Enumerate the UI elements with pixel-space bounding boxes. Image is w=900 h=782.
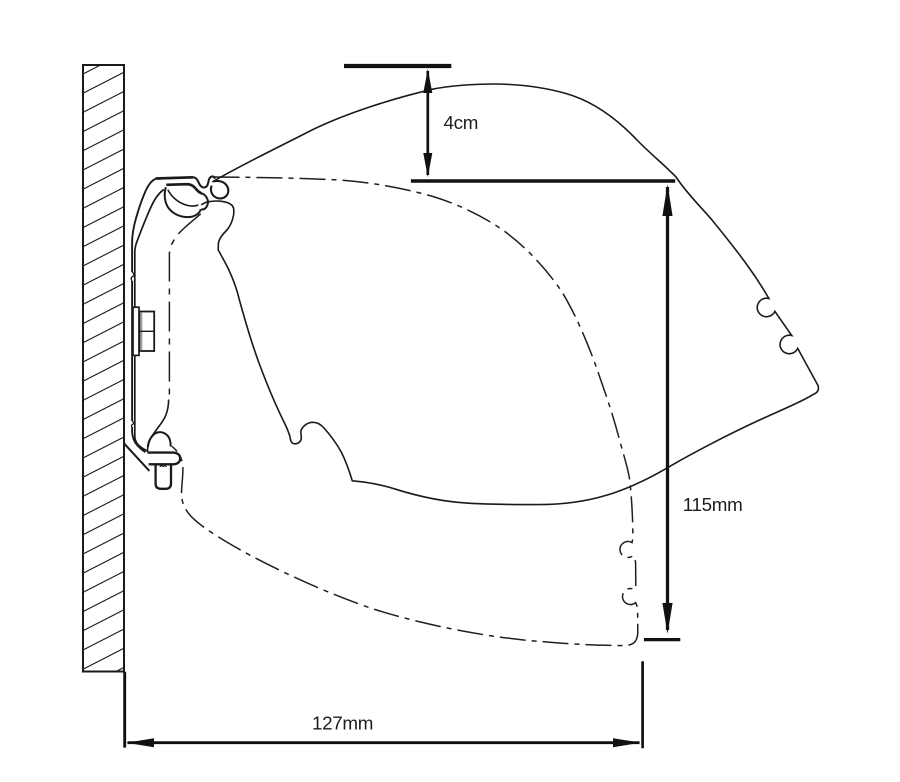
svg-text:115mm: 115mm	[683, 494, 743, 515]
svg-text:4cm: 4cm	[444, 112, 479, 133]
svg-text:127mm: 127mm	[312, 713, 373, 734]
